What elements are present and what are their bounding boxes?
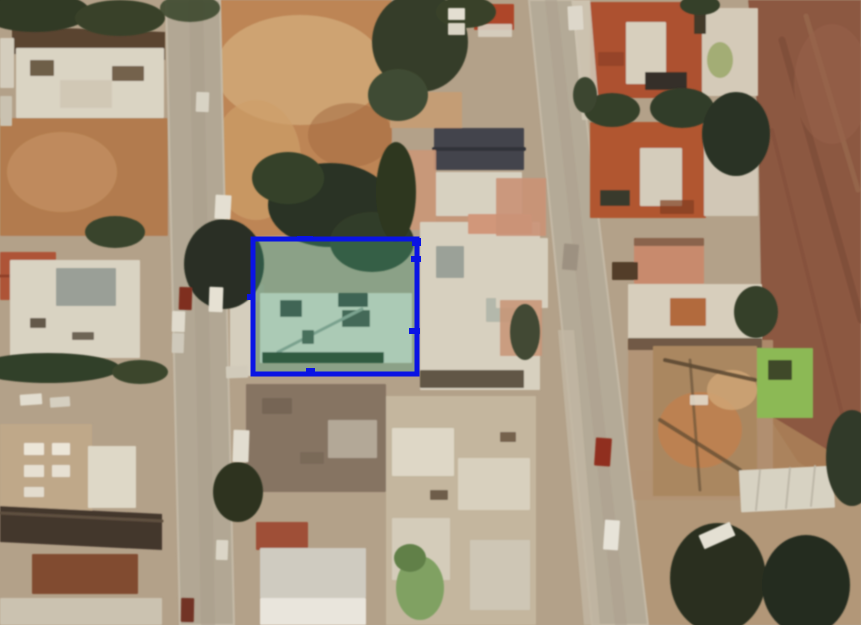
parcel-outline-jog xyxy=(409,328,420,334)
parcel-outline-jog xyxy=(297,236,313,241)
satellite-map-view xyxy=(0,0,861,625)
atmosphere-layer xyxy=(0,0,861,625)
parcel-outline-jog xyxy=(247,294,255,300)
satellite-canvas[interactable] xyxy=(0,0,861,625)
parcel-outline[interactable] xyxy=(253,239,417,374)
parcel-outline-jog xyxy=(306,368,315,375)
parcel-outline-jog xyxy=(412,238,421,246)
warm-cast xyxy=(0,0,861,625)
parcel-outline-jog xyxy=(411,256,421,262)
parcel-overlay-group xyxy=(247,236,421,375)
